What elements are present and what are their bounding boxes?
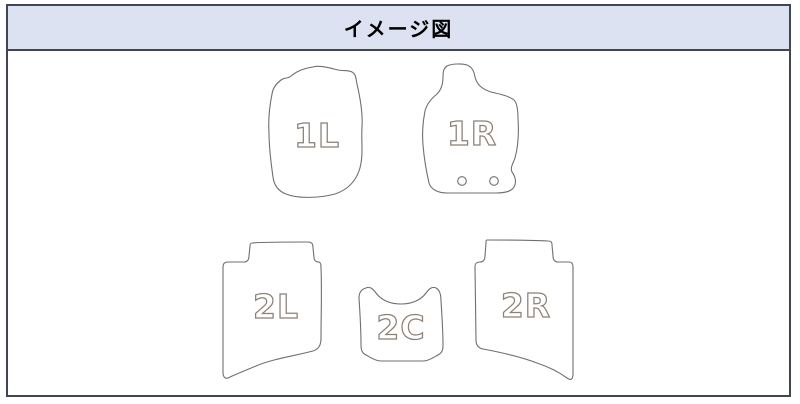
image-frame: イメージ図 <box>6 4 791 397</box>
page-title: イメージ図 <box>344 13 454 42</box>
header-bar: イメージ図 <box>8 6 789 51</box>
page: イメージ図 1L 1R 2L 2C 2R <box>0 0 800 404</box>
